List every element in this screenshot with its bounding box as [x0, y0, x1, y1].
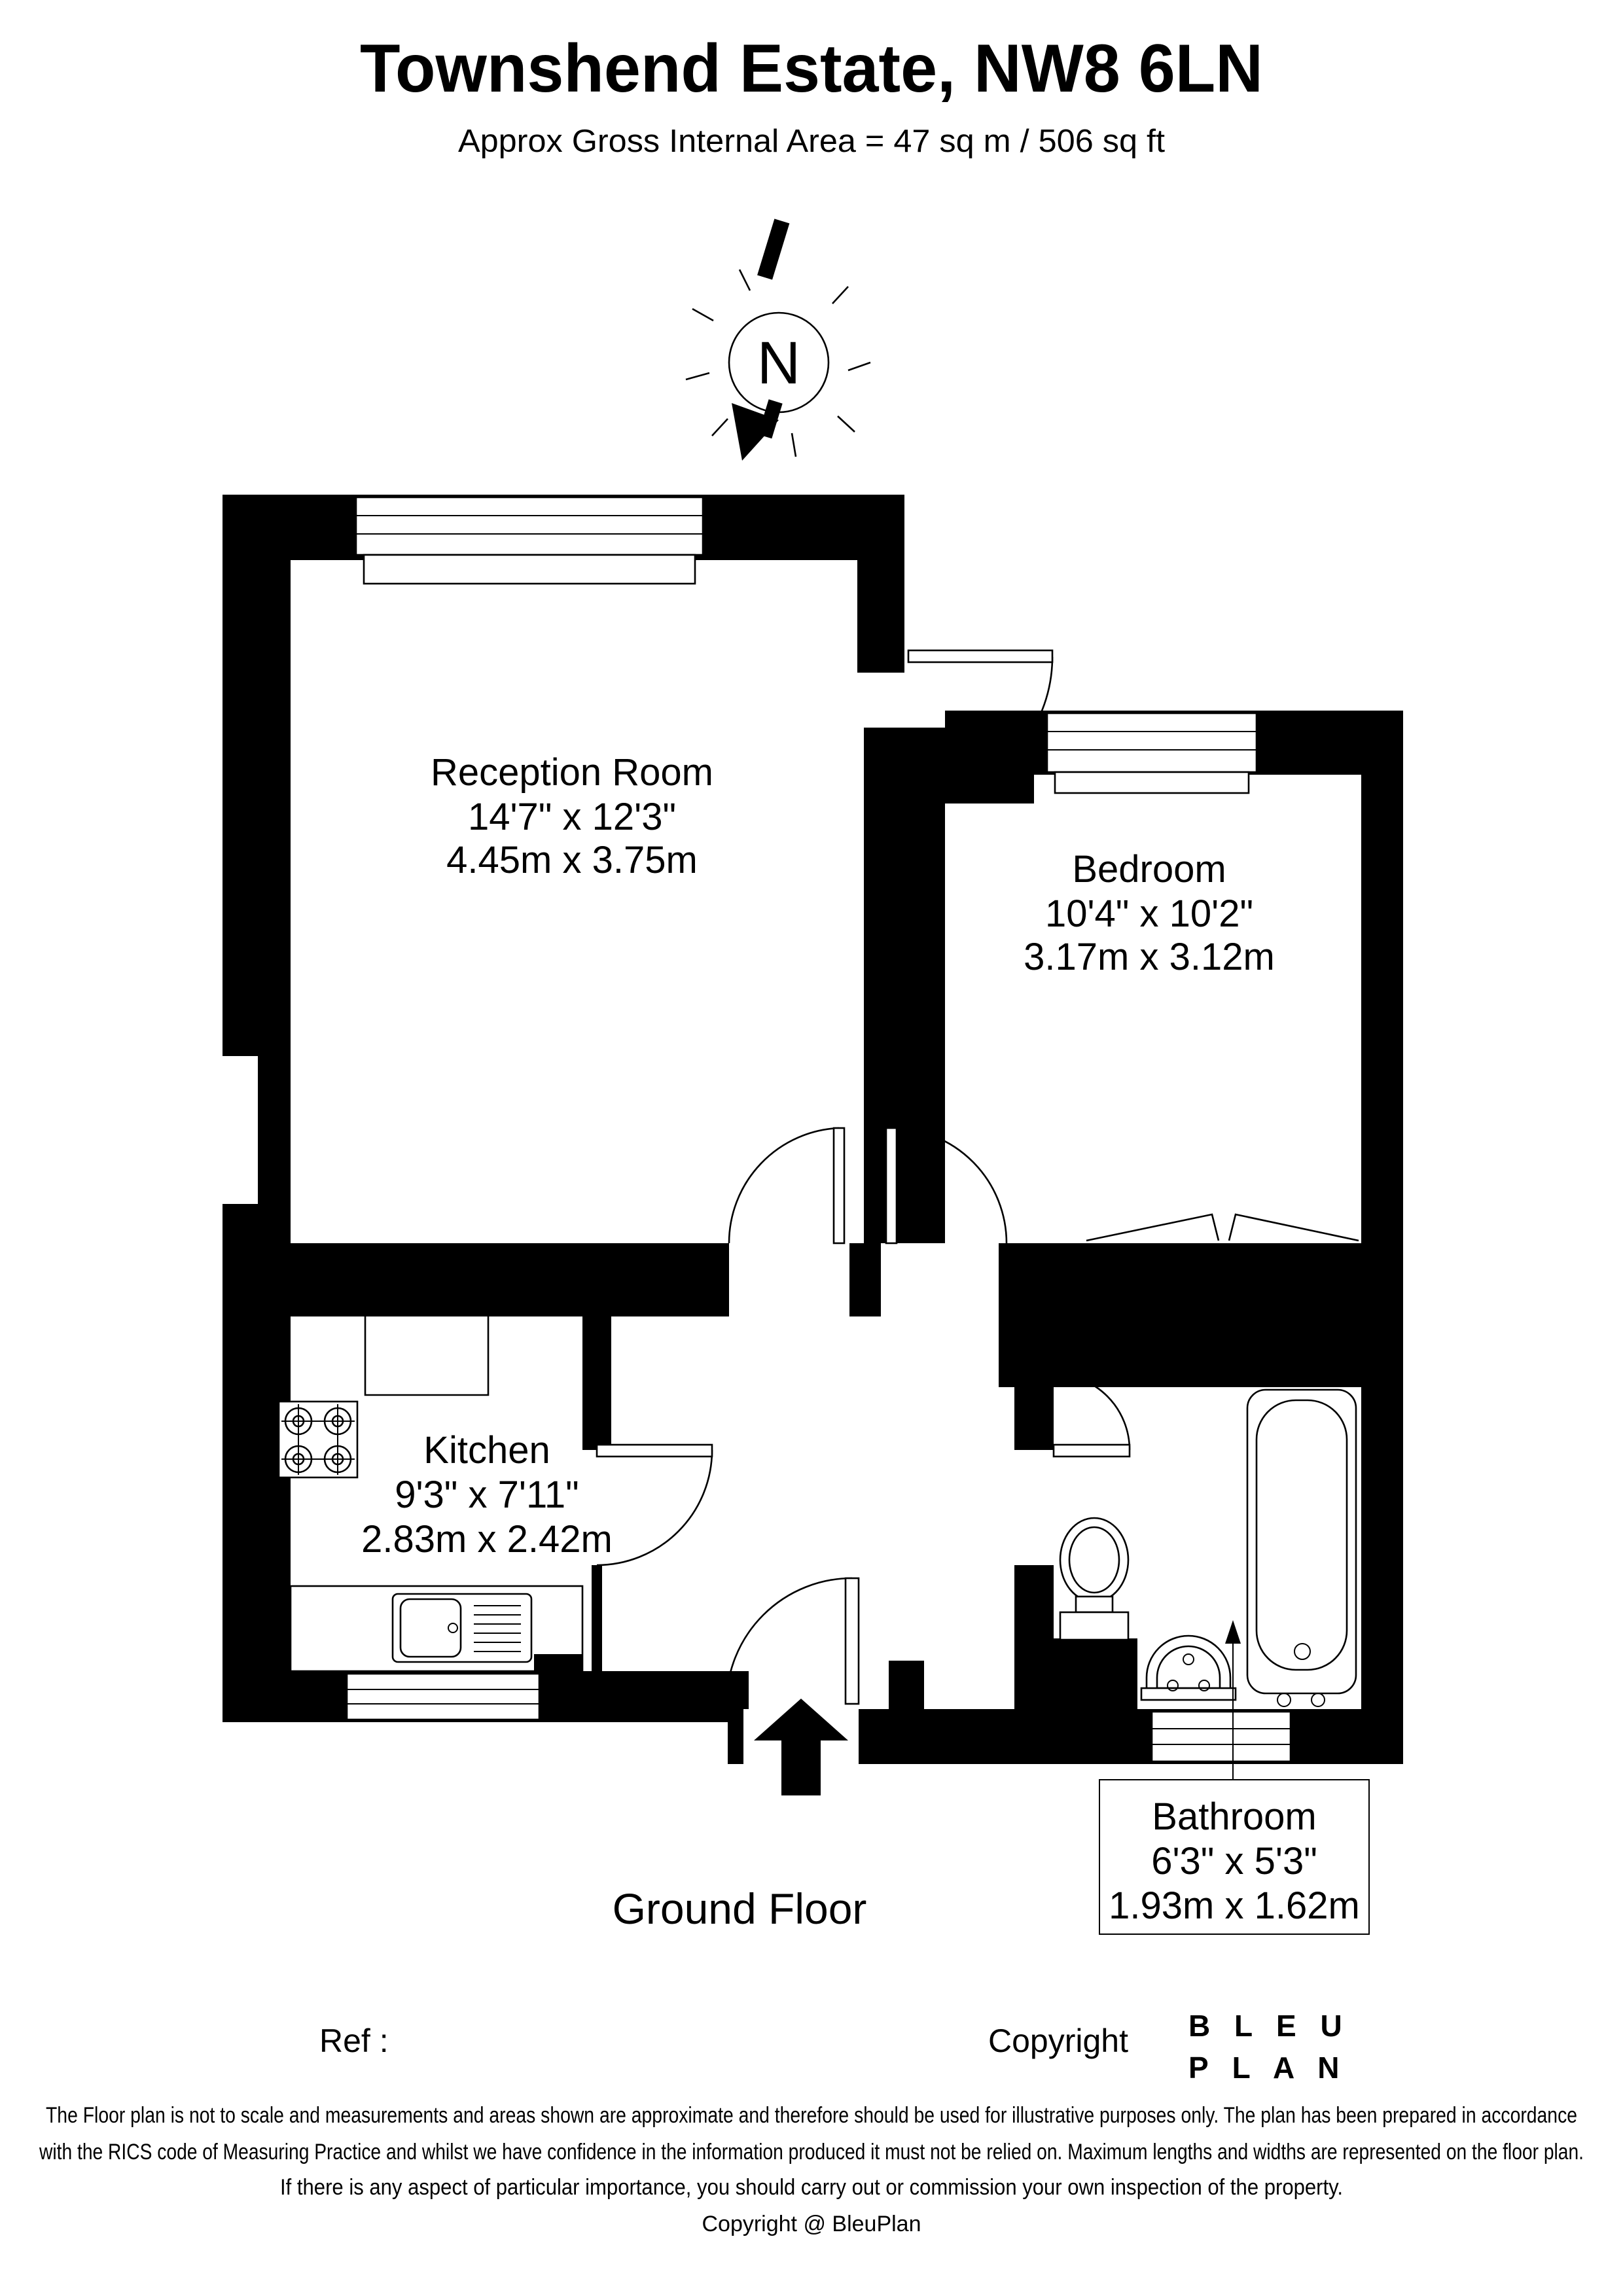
wardrobe-doors — [1086, 1214, 1359, 1241]
bathroom-metric: 1.93m x 1.62m — [1109, 1884, 1360, 1927]
kitchen-counter — [365, 1316, 488, 1395]
disclaimer-line1: The Floor plan is not to scale and measu… — [46, 2103, 1577, 2128]
logo-line2: P L A N — [1188, 2051, 1347, 2085]
ref-label: Ref : — [319, 2022, 389, 2059]
bedroom-label: Bedroom — [1072, 848, 1226, 891]
kitchen-window — [347, 1674, 539, 1720]
bedroom-label-group: Bedroom 10'4" x 10'2" 3.17m x 3.12m — [1024, 848, 1275, 978]
toilet-icon — [1060, 1518, 1128, 1640]
kitchen-imperial: 9'3" x 7'11" — [395, 1474, 579, 1516]
reception-door — [729, 1128, 844, 1243]
basin-icon — [1141, 1636, 1236, 1700]
bedroom-metric: 3.17m x 3.12m — [1024, 936, 1275, 978]
disclaimer-line2: with the RICS code of Measuring Practice… — [39, 2140, 1584, 2164]
kitchen-label: Kitchen — [423, 1429, 550, 1472]
floorplan-page: Townshend Estate, NW8 6LN Approx Gross I… — [0, 0, 1623, 2296]
reception-metric: 4.45m x 3.75m — [446, 839, 698, 881]
logo-line1: B L E U — [1188, 2009, 1350, 2043]
reception-label: Reception Room — [431, 751, 713, 794]
disclaimer-line3: If there is any aspect of particular imp… — [280, 2175, 1343, 2200]
disclaimer-line4: Copyright @ BleuPlan — [702, 2212, 921, 2236]
page-title: Townshend Estate, NW8 6LN — [360, 31, 1263, 107]
stove-icon — [279, 1402, 357, 1477]
bedroom-imperial: 10'4" x 10'2" — [1045, 892, 1253, 935]
north-arrow-icon: N — [686, 219, 870, 461]
kitchen-metric: 2.83m x 2.42m — [361, 1518, 613, 1561]
north-label: N — [757, 330, 800, 397]
reception-label-group: Reception Room 14'7" x 12'3" 4.45m x 3.7… — [431, 751, 713, 881]
walls — [223, 495, 1403, 1764]
reception-imperial: 14'7" x 12'3" — [468, 796, 676, 838]
bathroom-window — [1152, 1712, 1291, 1761]
kitchen-door — [597, 1445, 712, 1565]
floor-label: Ground Floor — [613, 1884, 867, 1933]
bathtub-icon — [1247, 1390, 1356, 1706]
bathroom-label: Bathroom — [1152, 1795, 1316, 1838]
page-subtitle: Approx Gross Internal Area = 47 sq m / 5… — [458, 124, 1165, 159]
reception-window — [356, 497, 703, 584]
bathroom-imperial: 6'3" x 5'3" — [1151, 1840, 1317, 1882]
bedroom-window — [1047, 713, 1257, 793]
copyright-label: Copyright — [988, 2022, 1128, 2059]
bleuplan-logo: B L E U P L A N — [1188, 2009, 1350, 2085]
kitchen-label-group: Kitchen 9'3" x 7'11" 2.83m x 2.42m — [361, 1429, 613, 1561]
